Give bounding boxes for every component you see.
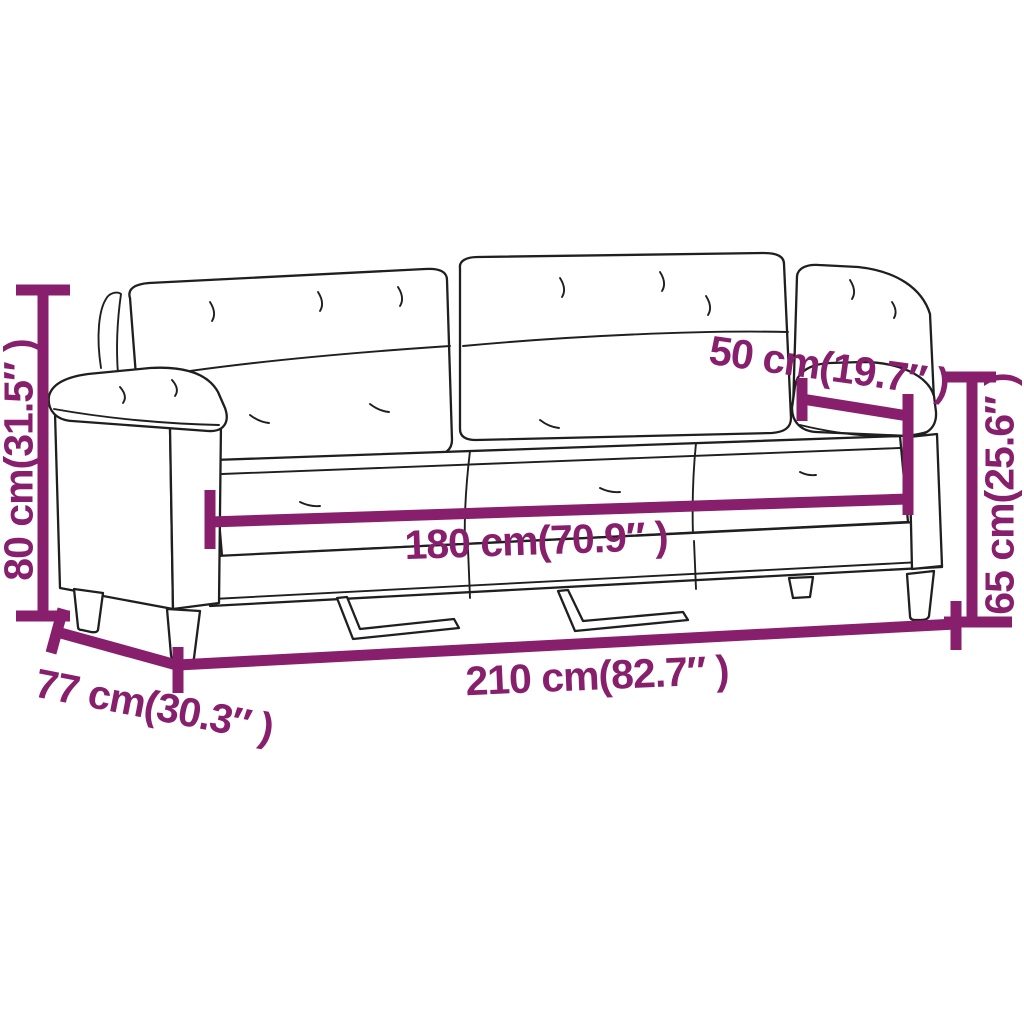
sofa-outline <box>49 253 942 661</box>
right-arm-body <box>909 434 942 569</box>
seat-width-dimension-label: 180 cm(70.9″ ) <box>404 516 668 566</box>
sofa-line-art <box>0 0 1024 1024</box>
dimension-diagram: 80 cm(31.5″ ) 50 cm(19.7″ ) 65 cm(25.6″ … <box>0 0 1024 1024</box>
sled-leg-right <box>558 590 688 631</box>
height-dimension-label: 80 cm(31.5″ ) <box>0 339 40 580</box>
total-width-dimension-label: 210 cm(82.7″ ) <box>465 650 730 702</box>
left-arm-pad <box>49 368 227 431</box>
depth-dimension-line <box>51 609 180 666</box>
back-frame-edge <box>99 293 121 374</box>
sled-leg-left <box>337 597 459 639</box>
back-left-leg <box>74 589 103 632</box>
front-right-leg <box>907 571 934 620</box>
left-arm-front-face <box>55 413 173 609</box>
seat-height-dimension-label: 65 cm(25.6″ ) <box>980 373 1021 614</box>
back-middle-leg <box>789 577 813 598</box>
